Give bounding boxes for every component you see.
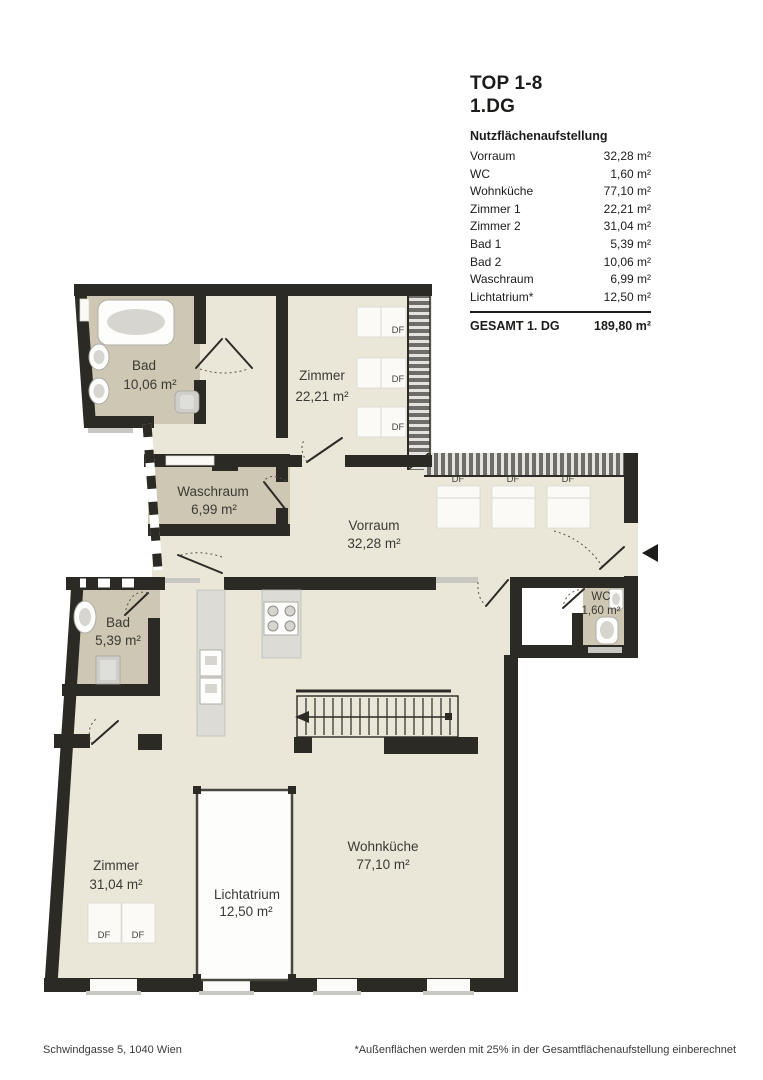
room-label-zimmer1: Zimmer [299,368,345,383]
address-footer: Schwindgasse 5, 1040 Wien [43,1044,182,1056]
room-area-zimmer2: 31,04 m² [89,877,143,892]
df-label: DF [562,474,575,485]
room-area-lichtatrium: 12,50 m² [219,904,273,919]
sink [74,601,96,633]
roof-hatch-bands [408,288,626,476]
sink [89,378,109,404]
room-label-bad1: Bad [132,358,156,373]
entry-arrow-icon [642,544,658,562]
shower [96,656,120,684]
room-label-lichtatrium: Lichtatrium [214,887,280,902]
room-area-wc: 1,60 m² [582,605,621,617]
df-label: DF [132,930,145,941]
sink [89,344,109,370]
room-area-vorraum: 32,28 m² [347,536,401,551]
df-label: DF [392,374,405,385]
df-label: DF [507,474,520,485]
room-label-vorraum: Vorraum [348,518,399,533]
floorplan-page: TOP 1-8 1.DG Nutzflächenaufstellung Vorr… [0,0,763,1080]
room-area-waschraum: 6,99 m² [191,502,237,517]
bathtub [98,300,174,345]
room-area-zimmer1: 22,21 m² [295,389,349,404]
room-area-bad1: 10,06 m² [123,377,177,392]
room-area-wohnkueche: 77,10 m² [356,857,410,872]
room-label-waschraum: Waschraum [177,484,249,499]
df-label: DF [98,930,111,941]
df-label: DF [392,422,405,433]
wc-toilet [596,617,618,644]
light-atrium [193,786,296,982]
room-label-wohnkueche: Wohnküche [347,839,418,854]
room-label-zimmer2: Zimmer [93,858,139,873]
room-area-bad2: 5,39 m² [95,633,141,648]
room-label-wc: WC [591,591,610,603]
footnote: *Außenflächen werden mit 25% in der Gesa… [354,1044,736,1056]
floor-plan: Bad 10,06 m² Zimmer 22,21 m² Waschraum 6… [0,0,763,1080]
df-label: DF [392,325,405,336]
toilet [175,391,199,413]
room-label-bad2: Bad [106,615,130,630]
df-label: DF [452,474,465,485]
striped-walls [80,424,158,583]
